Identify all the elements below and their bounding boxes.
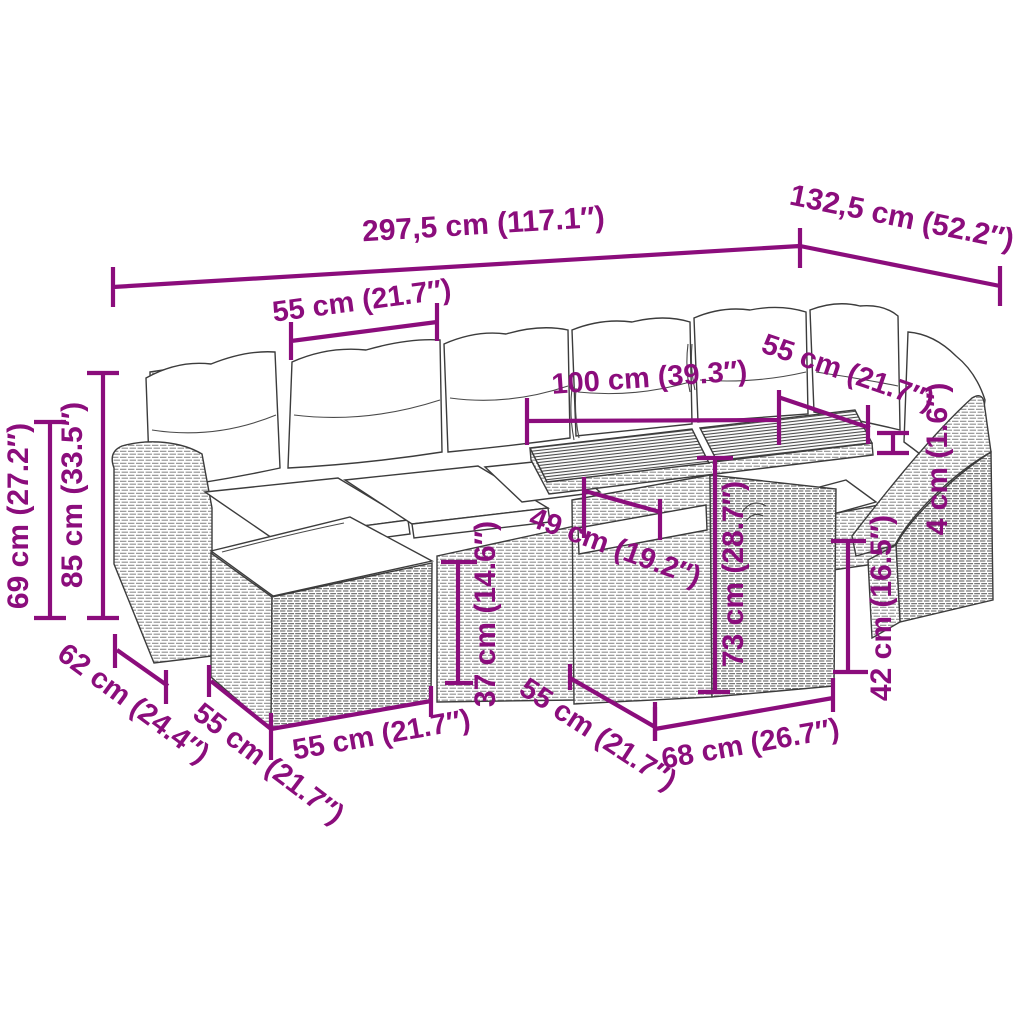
dim-table-height-label: 73 cm (28.7″) [717,481,750,667]
dim-seat-height: 42 cm (16.5″) [831,515,898,701]
dim-back-seat-width-label: 55 cm (21.7″) [271,273,454,328]
dim-total-depth: 132,5 cm (52.2″) [787,179,1017,306]
dim-stool-height-label: 37 cm (14.6″) [469,521,502,707]
dim-total-height: 85 cm (33.5″) [56,373,119,618]
back-cushion [288,340,442,468]
dim-total-width: 297,5 cm (117.1″) [113,201,800,307]
dim-tabletop-thickness-label: 4 cm (1.6″) [921,383,954,536]
dim-total-depth-label: 132,5 cm (52.2″) [787,179,1017,257]
diagram-canvas: 297,5 cm (117.1″) 132,5 cm (52.2″) 55 cm… [0,0,1024,1024]
dim-seat-height-label: 42 cm (16.5″) [865,515,898,701]
product-dimension-image: 297,5 cm (117.1″) 132,5 cm (52.2″) 55 cm… [0,0,1024,1024]
sofa-left-armrest [112,442,212,663]
footstool [211,517,432,729]
dim-total-height-label: 85 cm (33.5″) [56,402,89,588]
table [530,410,873,704]
dim-arm-height-label: 69 cm (27.2″) [2,423,35,609]
dim-total-width-label: 297,5 cm (117.1″) [361,201,605,249]
